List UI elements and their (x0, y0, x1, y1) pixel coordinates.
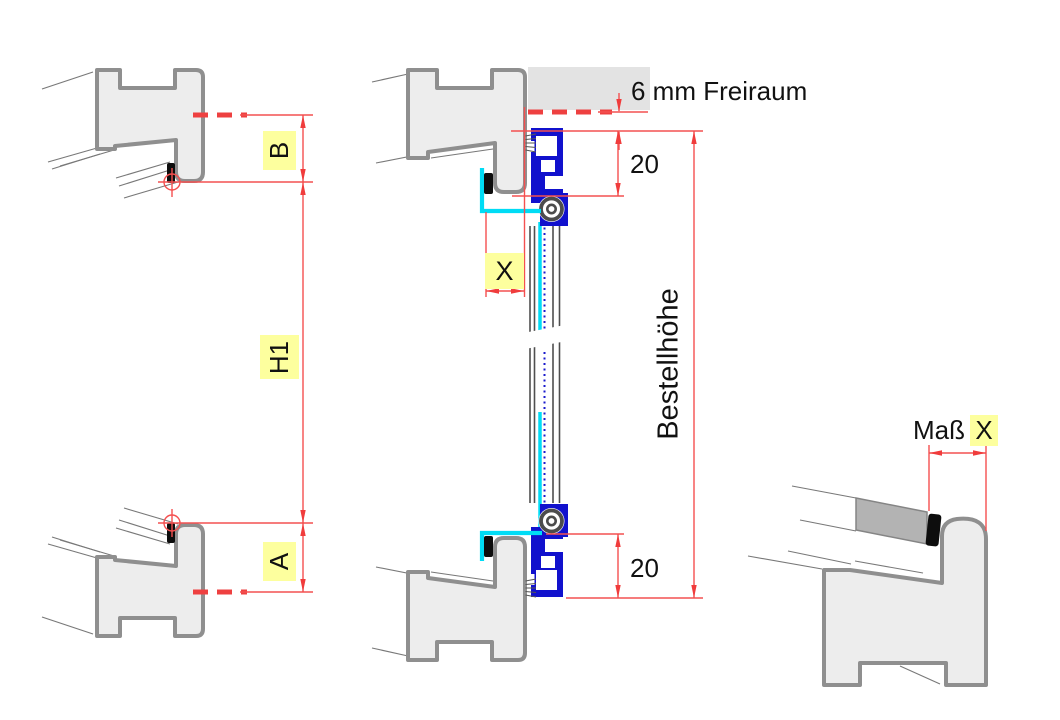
mounting-angle-cyan (482, 168, 542, 561)
dimension-20-top: 20 (630, 149, 659, 180)
mass-text: Maß (913, 415, 965, 446)
center-top-profile (408, 70, 525, 192)
freiraum-label: 6 mm Freiraum (631, 76, 807, 107)
reference-circle-markers (164, 174, 180, 531)
right-detail-profile (824, 519, 986, 685)
mass-x-value: X (970, 415, 998, 446)
dimension-b-text: B (264, 142, 295, 159)
dimension-20-bottom: 20 (630, 553, 659, 584)
center-bottom-profile (408, 538, 525, 660)
guide-rail (519, 222, 571, 527)
dimension-h1-text: H1 (264, 340, 295, 373)
dimension-a-label: A (263, 542, 296, 581)
dimension-x-label: X (485, 253, 524, 289)
dimension-h1-label: H1 (260, 335, 299, 379)
shutter-panel (856, 498, 927, 544)
mass-x-label: Maß X (913, 415, 998, 446)
dimension-b-label: B (263, 131, 296, 170)
left-top-profile (97, 70, 203, 181)
section-drawing (0, 0, 1060, 720)
dimension-x-text: X (495, 256, 513, 287)
technical-drawing-canvas: 6 mm Freiraum 20 20 Bestellhöhe B A H1 X… (0, 0, 1060, 720)
left-bottom-profile (97, 525, 203, 636)
order-height-label: Bestellhöhe (653, 288, 686, 440)
aluminium-track-bottom (531, 504, 568, 597)
dimension-a-text: A (264, 553, 295, 570)
